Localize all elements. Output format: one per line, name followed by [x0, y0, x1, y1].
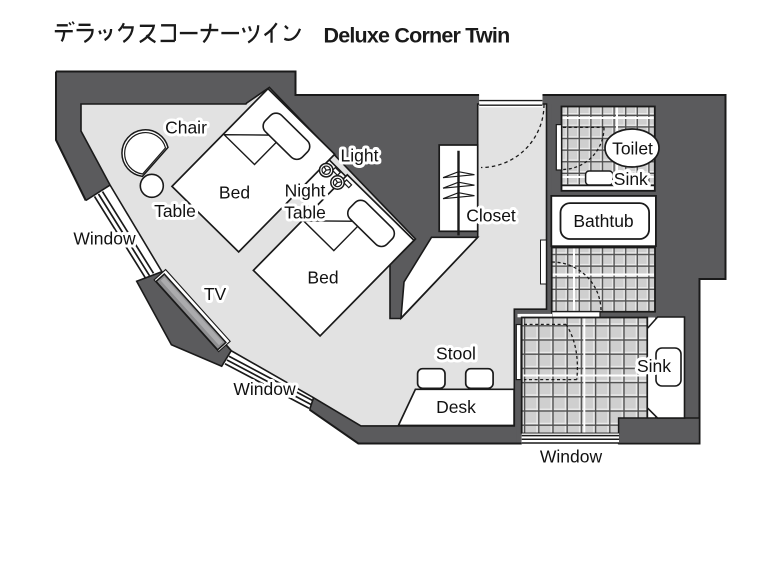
svg-text:Window: Window [73, 229, 136, 249]
svg-text:Sink: Sink [637, 356, 671, 376]
svg-text:Deluxe Corner Twin: Deluxe Corner Twin [324, 24, 510, 48]
svg-text:Desk: Desk [436, 397, 476, 417]
svg-text:Bed: Bed [307, 268, 338, 288]
svg-text:Chair: Chair [165, 118, 207, 138]
svg-text:Night: Night [285, 181, 326, 201]
svg-text:TV: TV [204, 284, 227, 304]
svg-text:Window: Window [540, 447, 603, 467]
svg-text:Stool: Stool [436, 344, 476, 364]
svg-text:Bathtub: Bathtub [573, 211, 633, 231]
svg-text:Table: Table [154, 201, 196, 221]
svg-text:Toilet: Toilet [612, 139, 653, 159]
svg-text:Window: Window [233, 379, 296, 399]
svg-text:Bed: Bed [219, 183, 250, 203]
svg-text:Closet: Closet [466, 206, 516, 226]
svg-text:Light: Light [341, 146, 379, 166]
svg-text:Sink: Sink [614, 169, 648, 189]
svg-text:Table: Table [284, 203, 326, 223]
